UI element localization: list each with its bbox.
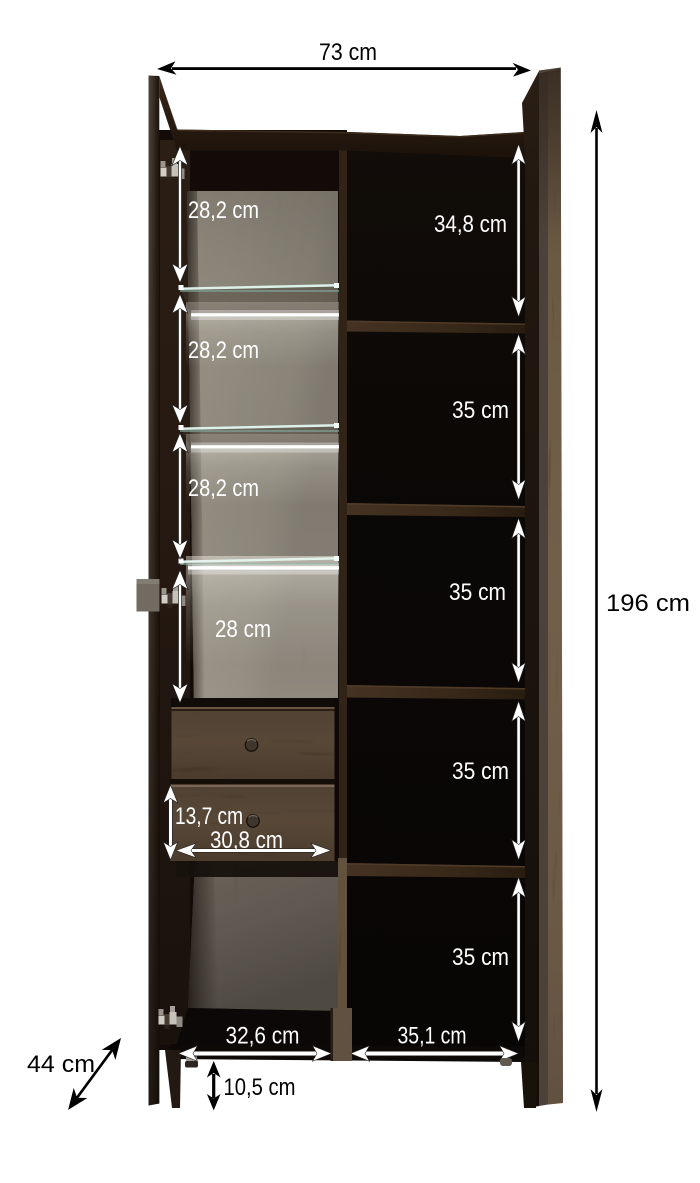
svg-text:30,8 cm: 30,8 cm	[210, 827, 283, 854]
svg-text:35 cm: 35 cm	[452, 944, 509, 971]
svg-text:73 cm: 73 cm	[319, 39, 377, 66]
svg-text:196 cm: 196 cm	[606, 590, 690, 617]
svg-text:28,2 cm: 28,2 cm	[188, 337, 259, 364]
svg-text:28,2 cm: 28,2 cm	[188, 197, 259, 224]
svg-text:35 cm: 35 cm	[452, 758, 509, 785]
svg-text:35,1 cm: 35,1 cm	[398, 1023, 467, 1050]
svg-text:44 cm: 44 cm	[27, 1051, 95, 1078]
svg-text:28,2 cm: 28,2 cm	[188, 475, 259, 502]
svg-text:10,5 cm: 10,5 cm	[224, 1074, 296, 1101]
svg-text:28 cm: 28 cm	[215, 616, 271, 643]
svg-text:34,8 cm: 34,8 cm	[434, 211, 507, 238]
svg-text:13,7 cm: 13,7 cm	[175, 803, 243, 830]
svg-text:35 cm: 35 cm	[452, 397, 509, 424]
svg-text:35 cm: 35 cm	[449, 579, 506, 606]
svg-text:32,6 cm: 32,6 cm	[226, 1023, 300, 1050]
